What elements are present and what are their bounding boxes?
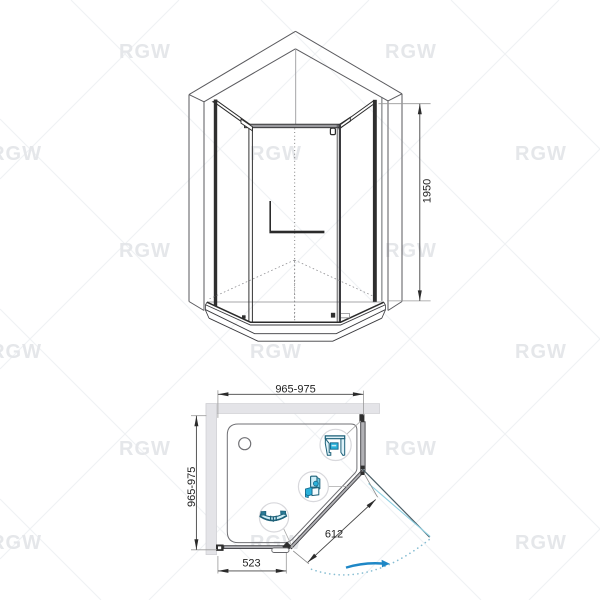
svg-text:RGW: RGW [0,532,42,554]
svg-text:965-975: 965-975 [186,467,198,507]
svg-text:RGW: RGW [250,143,302,165]
svg-text:612: 612 [325,529,343,541]
svg-text:RGW: RGW [515,341,567,363]
svg-text:RGW: RGW [385,240,437,262]
svg-text:RGW: RGW [0,341,42,363]
svg-text:RGW: RGW [385,438,437,460]
svg-text:RGW: RGW [385,41,437,63]
svg-text:RGW: RGW [119,240,171,262]
svg-text:RGW: RGW [515,532,567,554]
svg-text:1950: 1950 [422,179,434,203]
svg-text:965-975: 965-975 [275,383,315,395]
svg-text:RGW: RGW [119,41,171,63]
svg-text:RGW: RGW [0,143,42,165]
svg-text:523: 523 [242,558,260,570]
svg-text:RGW: RGW [515,143,567,165]
svg-text:RGW: RGW [119,438,171,460]
svg-text:RGW: RGW [250,341,302,363]
